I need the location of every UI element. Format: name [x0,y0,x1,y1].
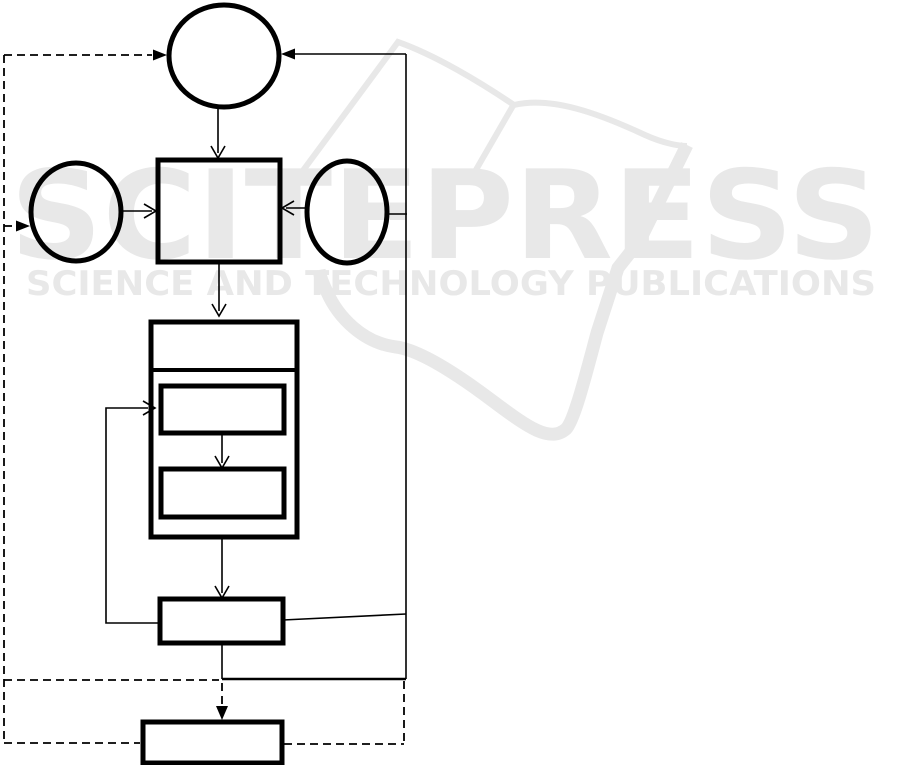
flowchart-page: SCITEPRESS SCIENCE AND TECHNOLOGY PUBLIC… [0,0,901,765]
flowchart-canvas: SCITEPRESS SCIENCE AND TECHNOLOGY PUBLIC… [0,0,901,765]
watermark-subtitle: SCIENCE AND TECHNOLOGY PUBLICATIONS [26,264,876,304]
post-loop-box-node [160,599,283,643]
loop-step-1-node [161,386,284,433]
start-circle-node [169,5,279,107]
arrowhead-into-circle-left [153,50,167,61]
logo-wing-stroke [514,103,687,146]
loop-container-node [151,322,297,537]
arrowhead-into-circle-right [281,49,295,60]
postloop-to-rail-line [283,614,406,620]
arrowhead-into-output-box [216,706,228,720]
output-box-node [143,722,282,763]
flowchart-nodes [31,5,387,763]
loop-step-2-node [161,469,284,517]
